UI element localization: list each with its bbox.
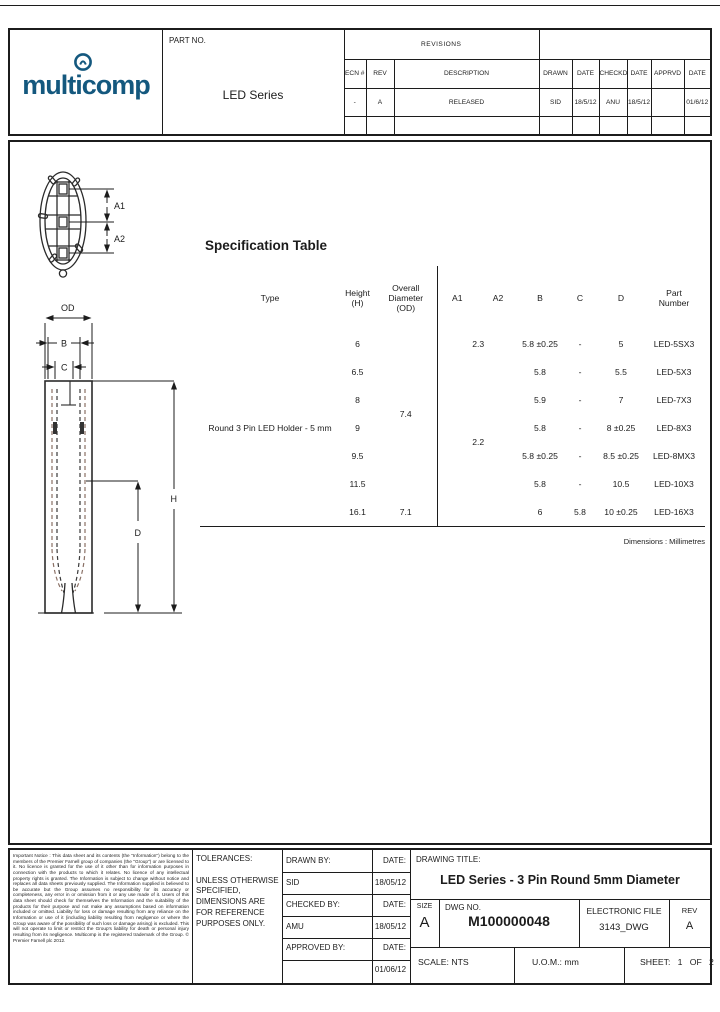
spec-d: 8 ±0.25 bbox=[599, 414, 643, 442]
col-ecn: ECN # bbox=[344, 59, 366, 88]
cell-drawn-date: 18/5/12 bbox=[572, 88, 599, 116]
col-checkd: CHECKD bbox=[599, 59, 627, 88]
spec-c: - bbox=[561, 386, 599, 414]
spec-col-d: D bbox=[599, 266, 643, 330]
col-rev: REV bbox=[366, 59, 394, 88]
header-box: multicomp PART NO. LED Series REVISIONS … bbox=[8, 28, 712, 136]
spec-table-title: Specification Table bbox=[205, 238, 327, 253]
spec-col-od: Overall Diameter (OD) bbox=[375, 266, 437, 330]
tb-row-line-2 bbox=[282, 894, 410, 895]
col-date1: DATE bbox=[572, 59, 599, 88]
led-side-view-drawing: OD B C D H bbox=[28, 293, 198, 628]
tb-row-line-4 bbox=[282, 938, 410, 939]
checked-date-value: 18/05/12 bbox=[372, 922, 409, 931]
dwg-no-label: DWG NO. bbox=[445, 903, 481, 912]
spec-d: 5 bbox=[599, 330, 643, 358]
tb-row-line-5 bbox=[282, 960, 410, 961]
approved-date-label: DATE: bbox=[372, 943, 406, 952]
multicomp-logo-mark-icon bbox=[74, 53, 92, 71]
sheet-value: SHEET: 1 OF 2 bbox=[640, 957, 714, 967]
part-no-label: PART NO. bbox=[169, 36, 206, 45]
tb-right-line-1 bbox=[410, 899, 710, 900]
approved-by-label: APPROVED BY: bbox=[286, 943, 345, 952]
pin-stop-left bbox=[53, 422, 57, 434]
spec-b: 5.9 bbox=[519, 386, 561, 414]
spec-part: LED-8X3 bbox=[643, 414, 705, 442]
size-value: A bbox=[410, 914, 439, 931]
cell-description: RELEASED bbox=[394, 88, 539, 116]
spec-h: 8 bbox=[340, 386, 375, 414]
spec-type-value: Round 3 Pin LED Holder - 5 mm bbox=[200, 330, 340, 526]
spec-c: - bbox=[561, 470, 599, 498]
size-label: SIZE bbox=[410, 903, 439, 910]
top-view-a1-label: A1 bbox=[114, 201, 125, 211]
spec-col-height: Height (H) bbox=[340, 266, 375, 330]
spec-od-71: 7.1 bbox=[375, 498, 437, 526]
tb-scale-sep bbox=[514, 947, 515, 983]
uom-value: U.O.M.: mm bbox=[532, 957, 579, 967]
checked-by-value: AMU bbox=[286, 922, 304, 931]
drawn-date-label: DATE: bbox=[372, 856, 406, 865]
spec-part: LED-5X3 bbox=[643, 358, 705, 386]
drawn-date-value: 18/05/12 bbox=[372, 878, 409, 887]
spec-b: 5.8 ±0.25 bbox=[519, 330, 561, 358]
side-view-b-label: B bbox=[61, 339, 67, 349]
cell-apprvd bbox=[651, 88, 684, 116]
drawn-by-value: SID bbox=[286, 878, 299, 887]
electronic-file-value: 3143_DWG bbox=[579, 922, 669, 933]
spec-c: - bbox=[561, 442, 599, 470]
col-apprvd: APPRVD bbox=[651, 59, 684, 88]
spec-h: 6 bbox=[340, 330, 375, 358]
spec-d: 10.5 bbox=[599, 470, 643, 498]
spec-col-b: B bbox=[519, 266, 561, 330]
spec-col-type: Type bbox=[200, 266, 340, 330]
spec-d: 7 bbox=[599, 386, 643, 414]
spec-col-part: Part Number bbox=[643, 266, 705, 330]
part-no-value: LED Series bbox=[162, 88, 344, 102]
cell-checked: ANU bbox=[599, 88, 627, 116]
spec-h: 11.5 bbox=[340, 470, 375, 498]
side-view-od-label: OD bbox=[61, 303, 75, 313]
spec-a-22: 2.2 bbox=[437, 358, 519, 526]
revisions-title-spacer bbox=[539, 30, 710, 59]
datasheet-page: multicomp PART NO. LED Series REVISIONS … bbox=[0, 0, 720, 1012]
spec-h: 16.1 bbox=[340, 498, 375, 526]
logo-wordmark: multicomp bbox=[10, 70, 162, 101]
col-date3: DATE bbox=[684, 59, 710, 88]
spec-col-a1: A1 bbox=[437, 266, 477, 330]
checked-by-label: CHECKED BY: bbox=[286, 900, 340, 909]
revisions-header-row: ECN # REV DESCRIPTION DRAWN DATE CHECKD … bbox=[344, 59, 710, 88]
spec-part: LED-16X3 bbox=[643, 498, 705, 526]
dimensions-note: Dimensions : Millimetres bbox=[500, 537, 705, 546]
part-no-cell: PART NO. LED Series bbox=[162, 30, 344, 134]
side-view-c-label: C bbox=[61, 363, 68, 373]
spec-c: - bbox=[561, 330, 599, 358]
revisions-data-row: - A RELEASED SID 18/5/12 ANU 18/5/12 01/… bbox=[344, 88, 710, 116]
spec-part: LED-10X3 bbox=[643, 470, 705, 498]
spec-header-row: Type Height (H) Overall Diameter (OD) A1… bbox=[200, 266, 705, 330]
spec-h: 9.5 bbox=[340, 442, 375, 470]
spec-d: 5.5 bbox=[599, 358, 643, 386]
spec-part: LED-5SX3 bbox=[643, 330, 705, 358]
dwg-no-value: M100000048 bbox=[439, 913, 579, 929]
spec-b: 6 bbox=[519, 498, 561, 526]
electronic-file-label: ELECTRONIC FILE bbox=[579, 906, 669, 916]
cell-apprvd-date: 01/6/12 bbox=[684, 88, 710, 116]
spec-d: 10 ±0.25 bbox=[599, 498, 643, 526]
tb-row-line-3 bbox=[282, 916, 410, 917]
spec-row-1: Round 3 Pin LED Holder - 5 mm 6 7.4 2.3 … bbox=[200, 330, 705, 358]
col-drawn: DRAWN bbox=[539, 59, 572, 88]
revisions-table: REVISIONS ECN # REV DESCRIPTION DRAWN DA… bbox=[344, 30, 710, 134]
top-view-a2-label: A2 bbox=[114, 234, 125, 244]
tb-right-line-2 bbox=[410, 947, 710, 948]
led-top-view-drawing: A1 A2 bbox=[26, 160, 151, 292]
tb-row-line-1 bbox=[282, 872, 410, 873]
spec-h: 9 bbox=[340, 414, 375, 442]
spec-c: - bbox=[561, 414, 599, 442]
cell-drawn: SID bbox=[539, 88, 572, 116]
tb-sep-1 bbox=[192, 850, 193, 983]
spec-c: - bbox=[561, 358, 599, 386]
spec-c: 5.8 bbox=[561, 498, 599, 526]
drawn-by-label: DRAWN BY: bbox=[286, 856, 331, 865]
scale-value: SCALE: NTS bbox=[418, 957, 469, 967]
title-block: Important Notice : This data sheet and i… bbox=[8, 848, 712, 985]
col-desc: DESCRIPTION bbox=[394, 59, 539, 88]
spec-table: Type Height (H) Overall Diameter (OD) A1… bbox=[200, 266, 705, 527]
spec-h: 6.5 bbox=[340, 358, 375, 386]
spec-part: LED-8MX3 bbox=[643, 442, 705, 470]
checked-date-label: DATE: bbox=[372, 900, 406, 909]
spec-a-23: 2.3 bbox=[437, 330, 519, 358]
drawing-title: LED Series - 3 Pin Round 5mm Diameter bbox=[410, 873, 710, 887]
pin-stop-right bbox=[80, 422, 84, 434]
cell-rev: A bbox=[366, 88, 394, 116]
col-date2: DATE bbox=[627, 59, 651, 88]
spec-b: 5.8 bbox=[519, 470, 561, 498]
approved-date-value: 01/06/12 bbox=[372, 965, 409, 974]
rev-label: REV bbox=[669, 906, 710, 915]
cell-ecn: - bbox=[344, 88, 366, 116]
revisions-title: REVISIONS bbox=[344, 30, 539, 59]
tb-uom-sep bbox=[624, 947, 625, 983]
drawing-title-label: DRAWING TITLE: bbox=[416, 855, 480, 864]
logo-cell: multicomp bbox=[10, 30, 162, 134]
spec-b: 5.8 bbox=[519, 358, 561, 386]
spec-col-a2: A2 bbox=[477, 266, 519, 330]
spec-d: 8.5 ±0.25 bbox=[599, 442, 643, 470]
sheet-top-edge-line bbox=[0, 5, 720, 6]
spec-part: LED-7X3 bbox=[643, 386, 705, 414]
spec-od-74: 7.4 bbox=[375, 330, 437, 498]
revisions-empty-row bbox=[344, 116, 710, 134]
rev-value: A bbox=[669, 920, 710, 932]
legal-disclaimer: Important Notice : This data sheet and i… bbox=[10, 850, 192, 983]
tolerances-note: TOLERANCES: UNLESS OTHERWISE SPECIFIED, … bbox=[196, 854, 280, 930]
side-view-d-label: D bbox=[135, 528, 142, 538]
cell-checked-date: 18/5/12 bbox=[627, 88, 651, 116]
spec-b: 5.8 ±0.25 bbox=[519, 442, 561, 470]
spec-col-c: C bbox=[561, 266, 599, 330]
spec-b: 5.8 bbox=[519, 414, 561, 442]
side-view-h-label: H bbox=[171, 494, 178, 504]
